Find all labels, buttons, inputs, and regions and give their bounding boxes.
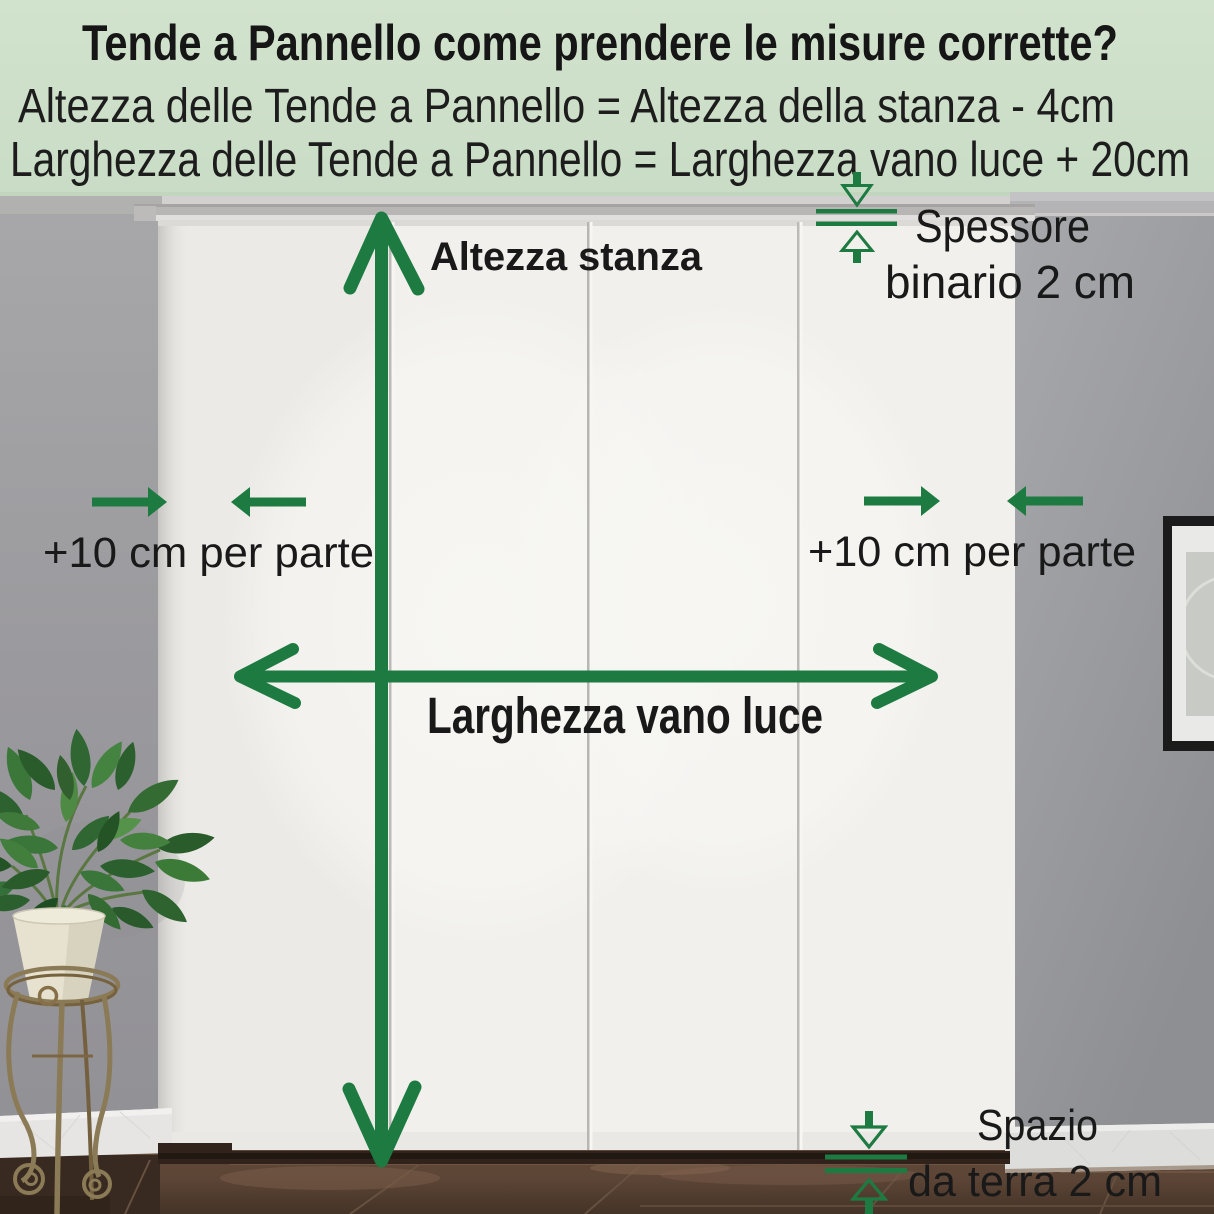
- svg-text:+10 cm per parte: +10 cm per parte: [43, 529, 374, 577]
- svg-text:Spessore: Spessore: [915, 200, 1090, 252]
- svg-text:binario 2 cm: binario 2 cm: [885, 256, 1135, 308]
- svg-text:da terra 2 cm: da terra 2 cm: [908, 1157, 1162, 1206]
- svg-text:Tende a Pannello come prendere: Tende a Pannello come prendere le misure…: [82, 15, 1118, 71]
- svg-text:Larghezza delle Tende a Pannel: Larghezza delle Tende a Pannello = Largh…: [10, 133, 1190, 187]
- svg-text:Larghezza vano luce: Larghezza vano luce: [427, 687, 823, 744]
- svg-text:Spazio: Spazio: [977, 1101, 1098, 1150]
- svg-text:Altezza delle Tende a Pannello: Altezza delle Tende a Pannello = Altezza…: [18, 80, 1115, 133]
- svg-text:Altezza stanza: Altezza stanza: [430, 235, 703, 279]
- svg-text:+10 cm per parte: +10 cm per parte: [808, 528, 1136, 576]
